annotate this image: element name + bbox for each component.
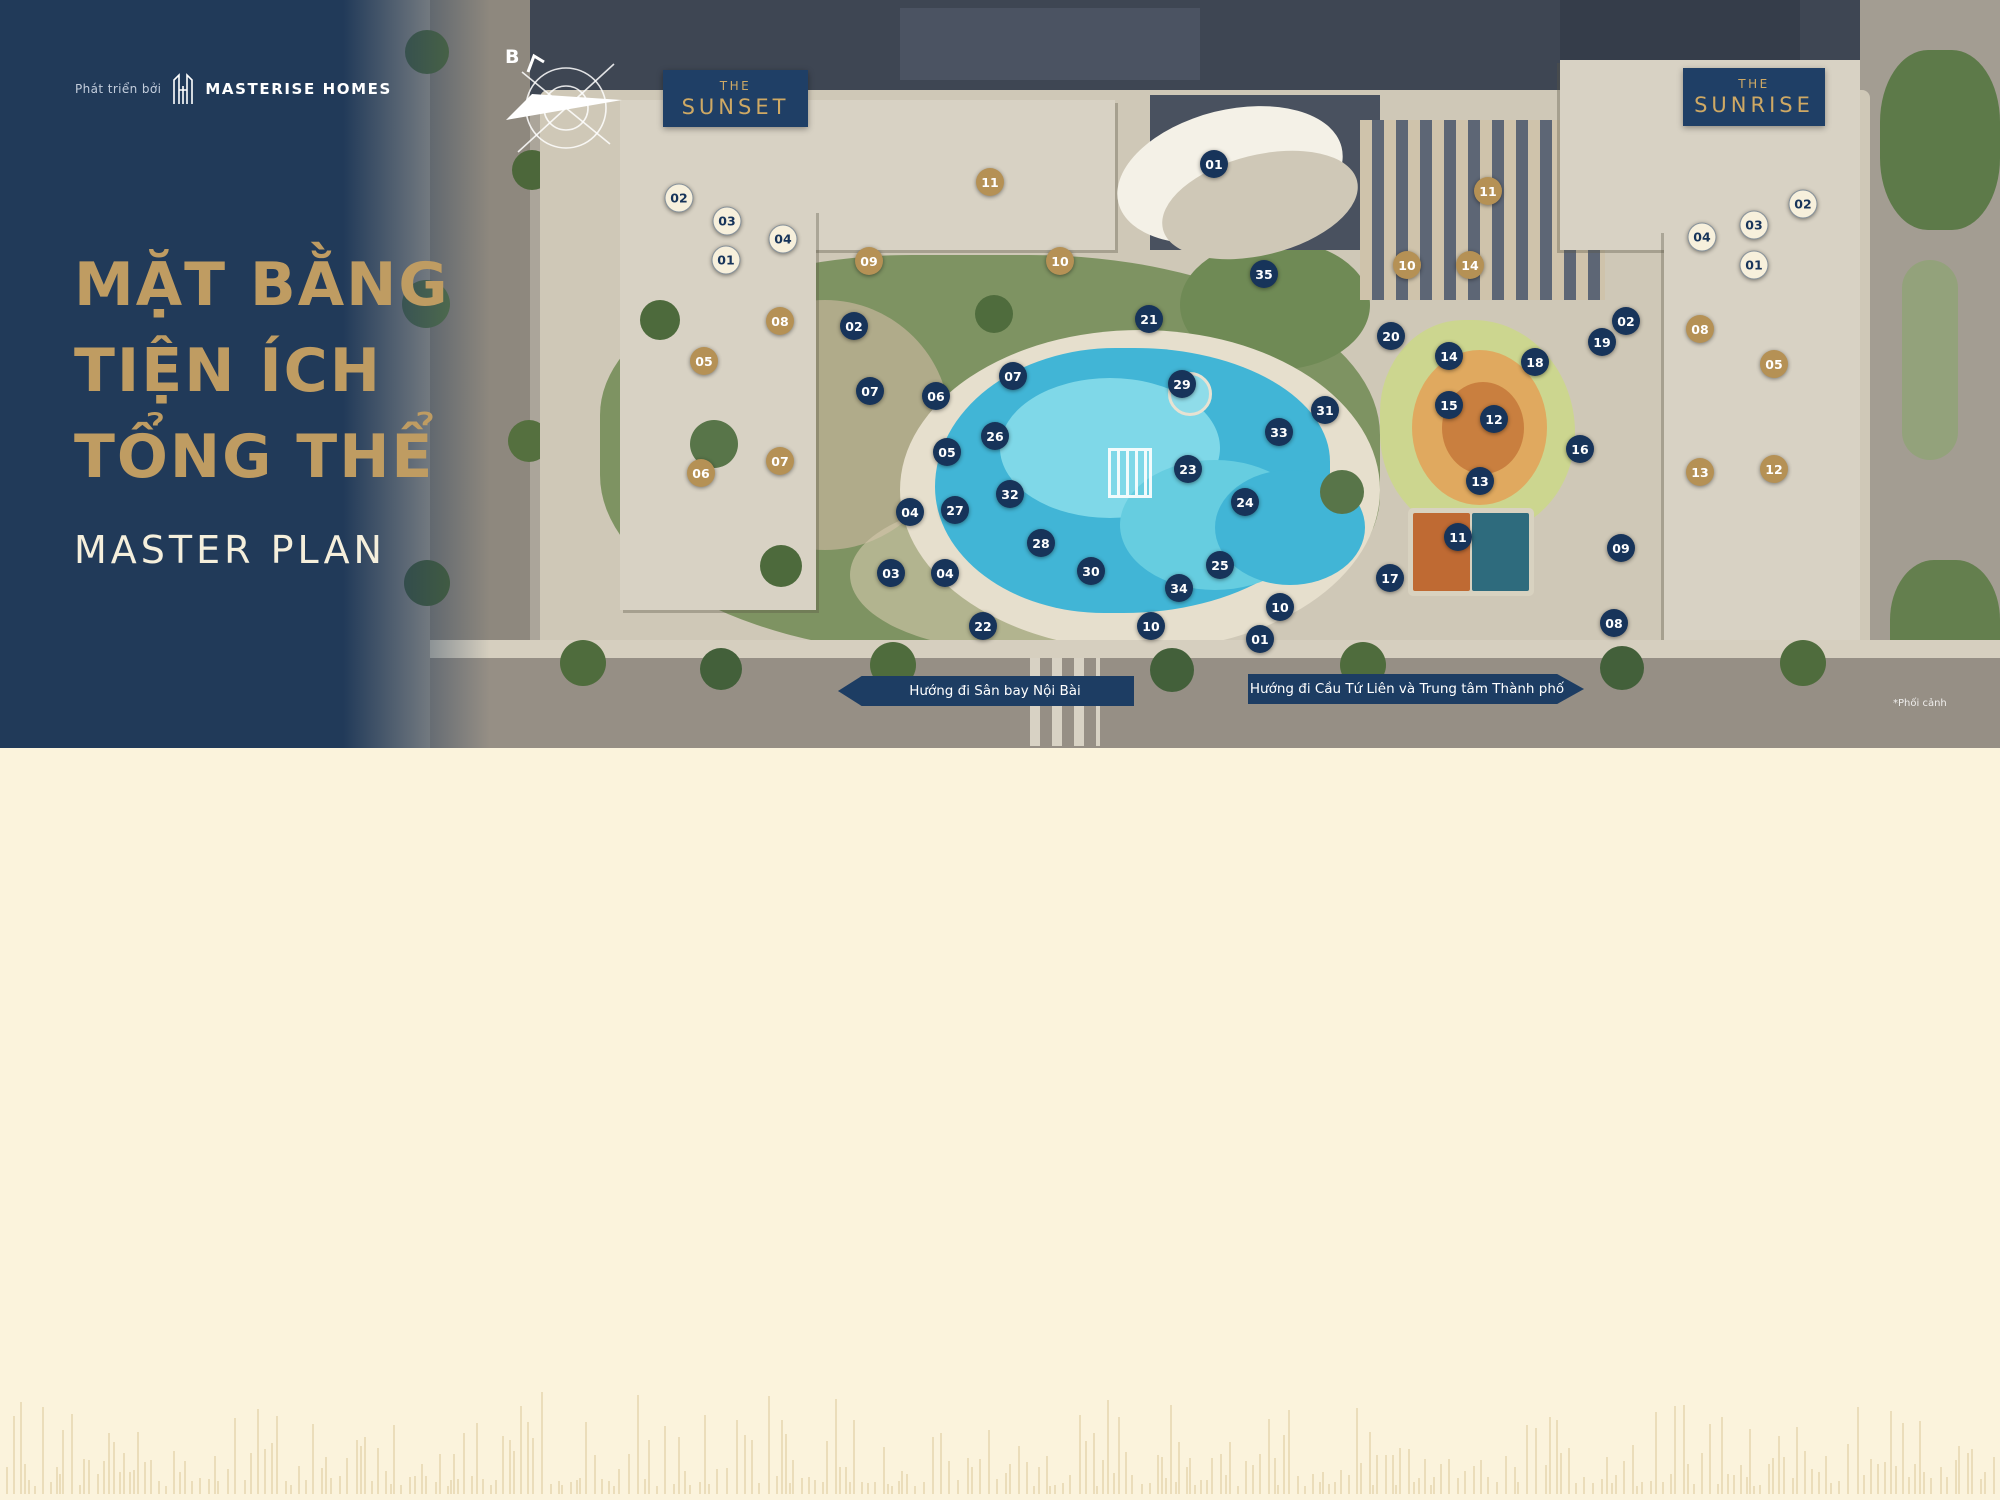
barcode-bar xyxy=(887,1484,889,1494)
map-marker-14[interactable]: 14 xyxy=(1456,251,1484,279)
map-marker-30[interactable]: 30 xyxy=(1077,557,1105,585)
barcode-bar xyxy=(1721,1417,1723,1494)
map-marker-11[interactable]: 11 xyxy=(976,168,1004,196)
barcode-bar xyxy=(520,1406,522,1494)
barcode-bar xyxy=(1592,1483,1594,1494)
legend-section: TIỆN ÍCH NGOÀI TRỜI TIỆN ÍCH TRONG NHÀ T… xyxy=(0,748,2000,1500)
barcode-bar xyxy=(678,1437,680,1494)
map-marker-13[interactable]: 13 xyxy=(1466,467,1494,495)
barcode-bar xyxy=(88,1460,90,1494)
barcode-bar xyxy=(1328,1484,1330,1494)
barcode-bar xyxy=(1870,1459,1872,1494)
barcode-bar xyxy=(271,1443,273,1494)
map-marker-20[interactable]: 20 xyxy=(1377,322,1405,350)
barcode-bar xyxy=(853,1420,855,1494)
barcode-bar xyxy=(34,1486,36,1494)
barcode-bar xyxy=(874,1482,876,1494)
barcode-bar xyxy=(1430,1485,1432,1494)
map-marker-01[interactable]: 01 xyxy=(1200,150,1228,178)
barcode-bar xyxy=(377,1448,379,1494)
barcode-bar xyxy=(1334,1482,1336,1494)
barcode-bar xyxy=(1319,1482,1321,1494)
barcode-bar xyxy=(119,1472,121,1494)
barcode-bar xyxy=(62,1430,64,1494)
barcode-bar xyxy=(1838,1481,1840,1494)
barcode-bar xyxy=(71,1414,73,1494)
barcode-bar xyxy=(1448,1459,1450,1494)
barcode-bar xyxy=(914,1486,916,1494)
barcode-bar xyxy=(1717,1484,1719,1494)
barcode-bar xyxy=(1693,1484,1695,1494)
barcode-bar xyxy=(371,1481,373,1494)
barcode-bar xyxy=(1268,1419,1270,1494)
map-marker-04[interactable]: 04 xyxy=(931,559,959,587)
barcode-bar xyxy=(1768,1464,1770,1494)
barcode-bar xyxy=(56,1467,58,1494)
barcode-bar xyxy=(1033,1486,1035,1494)
map-marker-14[interactable]: 14 xyxy=(1435,342,1463,370)
map-marker-11[interactable]: 11 xyxy=(1474,177,1502,205)
barcode-bar xyxy=(923,1482,925,1494)
barcode-bar xyxy=(1259,1454,1261,1494)
barcode-bar xyxy=(1811,1469,1813,1494)
barcode-bar xyxy=(822,1482,824,1494)
map-marker-02[interactable]: 02 xyxy=(1612,307,1640,335)
barcode-bar xyxy=(744,1435,746,1494)
barcode-bar xyxy=(447,1486,449,1494)
barcode-bar xyxy=(1940,1467,1942,1494)
barcode-bar xyxy=(1560,1453,1562,1494)
barcode-bar xyxy=(708,1484,710,1494)
barcode-bar xyxy=(1237,1486,1239,1494)
barcode-bar xyxy=(576,1480,578,1494)
map-marker-16[interactable]: 16 xyxy=(1566,435,1594,463)
barcode-bar xyxy=(751,1440,753,1494)
barcode-bar xyxy=(861,1482,863,1494)
barcode-bar xyxy=(1395,1485,1397,1494)
barcode-bar xyxy=(1632,1445,1634,1494)
map-marker-03[interactable]: 03 xyxy=(1740,211,1769,240)
barcode-bar xyxy=(208,1479,210,1494)
barcode-bar xyxy=(704,1415,706,1494)
barcode-bar xyxy=(532,1438,534,1494)
barcode-bar xyxy=(1194,1485,1196,1494)
map-marker-05[interactable]: 05 xyxy=(933,438,961,466)
map-marker-28[interactable]: 28 xyxy=(1027,529,1055,557)
barcode-bar xyxy=(1107,1400,1109,1494)
barcode-bar xyxy=(264,1449,266,1494)
barcode-bar xyxy=(1984,1472,1986,1494)
map-marker-29[interactable]: 29 xyxy=(1168,370,1196,398)
map-marker-08[interactable]: 08 xyxy=(1686,315,1714,343)
barcode-bar xyxy=(1038,1467,1040,1494)
barcode-bar xyxy=(1186,1467,1188,1494)
barcode-bar xyxy=(144,1462,146,1494)
barcode-bar xyxy=(42,1407,44,1494)
barcode-bar xyxy=(1583,1477,1585,1494)
barcode-bar xyxy=(360,1446,362,1494)
barcode-bar xyxy=(103,1461,105,1494)
barcode-bar xyxy=(971,1467,973,1494)
barcode-bar xyxy=(1229,1442,1231,1494)
barcode-bar xyxy=(867,1483,869,1494)
barcode-bar xyxy=(1919,1421,1921,1494)
barcode-bar xyxy=(364,1437,366,1494)
barcode-bar xyxy=(1297,1476,1299,1494)
barcode-bar xyxy=(948,1461,950,1494)
map-marker-05[interactable]: 05 xyxy=(690,347,718,375)
barcode-bar xyxy=(1096,1486,1098,1494)
barcode-bar xyxy=(901,1471,903,1494)
map-marker-09[interactable]: 09 xyxy=(855,247,883,275)
barcode-bar xyxy=(476,1423,478,1494)
barcode-bar xyxy=(996,1479,998,1494)
barcode-bar xyxy=(785,1434,787,1494)
barcode-bar xyxy=(150,1460,152,1494)
barcode-bar xyxy=(123,1453,125,1494)
barcode-bar xyxy=(1655,1412,1657,1494)
barcode-bar xyxy=(1955,1460,1957,1494)
barcode-bar xyxy=(1746,1477,1748,1494)
barcode-bar xyxy=(1980,1479,1982,1494)
barcode-bar xyxy=(1189,1458,1191,1494)
barcode-bar xyxy=(585,1422,587,1494)
barcode-bar xyxy=(356,1440,358,1494)
barcode-bar xyxy=(716,1469,718,1494)
barcode-bar xyxy=(1623,1461,1625,1494)
map-marker-24[interactable]: 24 xyxy=(1231,488,1259,516)
barcode-bar xyxy=(1131,1475,1133,1494)
barcode-bar xyxy=(1496,1482,1498,1494)
barcode-bar xyxy=(1908,1477,1910,1494)
map-marker-32[interactable]: 32 xyxy=(996,480,1024,508)
barcode-bar xyxy=(1749,1429,1751,1494)
barcode-bar xyxy=(1636,1486,1638,1494)
barcode-bar xyxy=(1709,1424,1711,1494)
barcode-bar xyxy=(988,1430,990,1494)
barcode-bar xyxy=(330,1478,332,1494)
barcode-bar xyxy=(1683,1405,1685,1494)
barcode-bar xyxy=(1178,1442,1180,1494)
barcode-bar xyxy=(1161,1457,1163,1494)
barcode-bar xyxy=(1473,1466,1475,1494)
map-marker-25[interactable]: 25 xyxy=(1206,551,1234,579)
barcode-bar xyxy=(808,1477,810,1494)
barcode-bar xyxy=(276,1416,278,1494)
barcode-bar xyxy=(502,1436,504,1494)
map-marker-19[interactable]: 19 xyxy=(1588,328,1616,356)
barcode-bar xyxy=(1418,1478,1420,1494)
barcode-bar xyxy=(849,1482,851,1494)
barcode-bar xyxy=(425,1476,427,1494)
barcode-bar xyxy=(1288,1410,1290,1494)
barcode-bar xyxy=(1026,1462,1028,1494)
barcode-bar xyxy=(608,1481,610,1494)
map-marker-23[interactable]: 23 xyxy=(1174,455,1202,483)
barcode-bar xyxy=(325,1457,327,1494)
barcode-bar xyxy=(1923,1472,1925,1494)
barcode-bar xyxy=(1740,1465,1742,1494)
barcode-bar xyxy=(1733,1475,1735,1494)
barcode-bar xyxy=(439,1454,441,1494)
barcode-bar xyxy=(594,1455,596,1494)
barcode-bar xyxy=(814,1480,816,1494)
barcode-bar xyxy=(1792,1478,1794,1494)
barcode-bar xyxy=(1930,1478,1932,1494)
barcode-bar xyxy=(217,1481,219,1494)
barcode-bar xyxy=(776,1476,778,1494)
barcode-bar xyxy=(50,1482,52,1494)
map-marker-06[interactable]: 06 xyxy=(922,382,950,410)
barcode-bar xyxy=(1046,1456,1048,1494)
barcode-bar xyxy=(1118,1417,1120,1494)
barcode-bar xyxy=(158,1481,160,1494)
barcode-bar xyxy=(1054,1485,1056,1494)
map-marker-06[interactable]: 06 xyxy=(687,459,715,487)
barcode-bar xyxy=(1601,1479,1603,1494)
barcode-bar xyxy=(1804,1451,1806,1494)
barcode-bar xyxy=(184,1461,186,1494)
barcode-bar xyxy=(1759,1485,1761,1494)
barcode-bar xyxy=(1993,1457,1995,1494)
barcode-bar xyxy=(1772,1458,1774,1494)
barcode-bar xyxy=(390,1484,392,1494)
map-marker-08[interactable]: 08 xyxy=(1600,609,1628,637)
barcode-bar xyxy=(1480,1460,1482,1494)
map-marker-02[interactable]: 02 xyxy=(1789,190,1818,219)
barcode-bar xyxy=(321,1468,323,1494)
map-marker-03[interactable]: 03 xyxy=(713,207,742,236)
map-marker-01[interactable]: 01 xyxy=(712,246,741,275)
barcode-bar xyxy=(1890,1411,1892,1494)
barcode-bar xyxy=(648,1440,650,1494)
barcode-bar xyxy=(1018,1446,1020,1494)
map-marker-04[interactable]: 04 xyxy=(896,498,924,526)
map-marker-11[interactable]: 11 xyxy=(1444,523,1472,551)
barcode-bar xyxy=(1606,1457,1608,1494)
barcode-bar xyxy=(1062,1483,1064,1494)
map-marker-04[interactable]: 04 xyxy=(769,225,798,254)
map-marker-03[interactable]: 03 xyxy=(877,559,905,587)
map-marker-26[interactable]: 26 xyxy=(981,422,1009,450)
barcode-bar xyxy=(129,1472,131,1494)
barcode-bar xyxy=(1971,1449,1973,1494)
map-marker-01[interactable]: 01 xyxy=(1246,625,1274,653)
barcode-bar xyxy=(173,1451,175,1494)
barcode-bar xyxy=(1753,1486,1755,1494)
barcode-bar xyxy=(290,1485,292,1494)
barcode-bar xyxy=(250,1453,252,1494)
barcode-bar xyxy=(1413,1482,1415,1494)
barcode-bar xyxy=(1399,1448,1401,1494)
barcode-bar xyxy=(495,1480,497,1494)
barcode-bar xyxy=(726,1468,728,1494)
barcode-bar xyxy=(1440,1464,1442,1494)
barcode-bar xyxy=(684,1471,686,1494)
barcode-bar xyxy=(1641,1482,1643,1494)
barcode-bar xyxy=(234,1418,236,1494)
barcode-bar xyxy=(1568,1448,1570,1494)
barcode-bar xyxy=(1877,1464,1879,1494)
barcode-bar xyxy=(1535,1428,1537,1494)
map-marker-05[interactable]: 05 xyxy=(1760,350,1788,378)
barcode-bar xyxy=(1487,1477,1489,1494)
map-marker-18[interactable]: 18 xyxy=(1521,348,1549,376)
barcode-bar xyxy=(1165,1478,1167,1494)
barcode-bar xyxy=(1141,1484,1143,1494)
map-marker-01[interactable]: 01 xyxy=(1740,251,1769,280)
barcode-bar xyxy=(1902,1423,1904,1494)
map-marker-10[interactable]: 10 xyxy=(1266,593,1294,621)
barcode-bar xyxy=(1304,1486,1306,1494)
barcode-bar xyxy=(883,1447,885,1494)
map-marker-10[interactable]: 10 xyxy=(1046,247,1074,275)
barcode-bar xyxy=(1283,1435,1285,1494)
barcode-bar xyxy=(435,1482,437,1494)
barcode-bar xyxy=(97,1474,99,1494)
barcode-bar xyxy=(79,1485,81,1494)
barcode-bar xyxy=(1424,1459,1426,1494)
map-marker-31[interactable]: 31 xyxy=(1311,396,1339,424)
barcode-bar xyxy=(6,1467,8,1494)
map-marker-21[interactable]: 21 xyxy=(1135,305,1163,333)
barcode-bar xyxy=(1783,1457,1785,1494)
map-marker-10[interactable]: 10 xyxy=(1137,612,1165,640)
map-marker-15[interactable]: 15 xyxy=(1435,391,1463,419)
barcode-bar xyxy=(1356,1408,1358,1494)
barcode-bar xyxy=(1340,1470,1342,1494)
barcode-bar xyxy=(1958,1446,1960,1494)
barcode-bar xyxy=(768,1396,770,1494)
barcode-bar xyxy=(1085,1441,1087,1494)
barcode-bar xyxy=(1884,1462,1886,1494)
barcode-bar xyxy=(1650,1481,1652,1494)
barcode-bar xyxy=(1408,1449,1410,1494)
barcode-bar xyxy=(656,1486,658,1494)
map-marker-04[interactable]: 04 xyxy=(1688,223,1717,252)
map-marker-07[interactable]: 07 xyxy=(999,362,1027,390)
barcode-bar xyxy=(618,1469,620,1494)
barcode-bar xyxy=(940,1433,942,1494)
map-marker-22[interactable]: 22 xyxy=(969,612,997,640)
map-marker-02[interactable]: 02 xyxy=(665,184,694,213)
barcode-bar xyxy=(1674,1406,1676,1494)
barcode-bar xyxy=(1847,1444,1849,1494)
map-marker-35[interactable]: 35 xyxy=(1250,260,1278,288)
barcode-bar xyxy=(108,1433,110,1494)
aerial-map: B THE SUNSET THE SUNRISE Hướng đi Sân ba… xyxy=(0,0,2000,748)
map-marker-34[interactable]: 34 xyxy=(1165,574,1193,602)
barcode-bar xyxy=(613,1486,615,1494)
barcode-bar xyxy=(1079,1415,1081,1494)
barcode-bar xyxy=(1348,1475,1350,1494)
barcode-bar xyxy=(1376,1455,1378,1494)
map-marker-07[interactable]: 07 xyxy=(766,447,794,475)
barcode-bar xyxy=(1277,1485,1279,1494)
map-marker-10[interactable]: 10 xyxy=(1393,251,1421,279)
barcode-bar xyxy=(165,1486,167,1494)
barcode-bar xyxy=(1369,1432,1371,1494)
barcode-bar xyxy=(409,1477,411,1494)
barcode-bar xyxy=(845,1467,847,1494)
barcode-bar xyxy=(1549,1417,1551,1494)
barcode-bar xyxy=(1662,1482,1664,1494)
map-marker-08[interactable]: 08 xyxy=(766,307,794,335)
barcode-bar xyxy=(13,1416,15,1494)
barcode-bar xyxy=(1670,1474,1672,1494)
barcode-bar xyxy=(1049,1486,1051,1494)
marker-layer: 0101020203040405060707080910101112131415… xyxy=(0,0,2000,748)
map-marker-12[interactable]: 12 xyxy=(1760,455,1788,483)
barcode-bar xyxy=(1914,1464,1916,1494)
barcode-bar xyxy=(1312,1474,1314,1494)
barcode-bar xyxy=(967,1458,969,1494)
map-marker-07[interactable]: 07 xyxy=(856,377,884,405)
barcode-bar xyxy=(312,1424,314,1494)
barcode-bar xyxy=(628,1454,630,1494)
barcode-bar xyxy=(561,1485,563,1494)
barcode-bar xyxy=(1727,1474,1729,1494)
barcode-bar xyxy=(1517,1482,1519,1494)
map-marker-17[interactable]: 17 xyxy=(1376,564,1404,592)
barcode-bar xyxy=(1220,1454,1222,1494)
barcode-bar xyxy=(1830,1483,1832,1494)
barcode-bar xyxy=(839,1467,841,1494)
barcode-bar xyxy=(83,1459,85,1494)
barcode-bar xyxy=(199,1478,201,1494)
barcode-bar xyxy=(1093,1433,1095,1494)
barcode-bar xyxy=(490,1485,492,1494)
barcode-bar xyxy=(1857,1407,1859,1494)
barcode-bar xyxy=(191,1481,193,1494)
barcode-bar xyxy=(792,1460,794,1494)
barcode-bar xyxy=(137,1432,139,1494)
barcode-bar xyxy=(113,1442,115,1494)
barcode-bar xyxy=(244,1480,246,1494)
map-marker-09[interactable]: 09 xyxy=(1607,534,1635,562)
barcode-bar xyxy=(1392,1455,1394,1494)
map-marker-13[interactable]: 13 xyxy=(1686,458,1714,486)
barcode-bar xyxy=(664,1426,666,1494)
barcode-bar xyxy=(1009,1464,1011,1494)
barcode-bar xyxy=(298,1466,300,1494)
barcode-bar xyxy=(339,1476,341,1494)
barcode-bar xyxy=(1687,1464,1689,1494)
barcode-bar xyxy=(1322,1472,1324,1494)
barcode-bar xyxy=(450,1480,452,1494)
barcode-bar xyxy=(1967,1453,1969,1494)
map-marker-02[interactable]: 02 xyxy=(840,312,868,340)
barcode-bar xyxy=(28,1480,30,1494)
barcode-bar xyxy=(393,1425,395,1494)
map-marker-12[interactable]: 12 xyxy=(1480,405,1508,433)
barcode-bar xyxy=(758,1483,760,1494)
barcode-bar xyxy=(1796,1427,1798,1494)
barcode-bar xyxy=(1863,1475,1865,1494)
barcode-bar xyxy=(1149,1483,1151,1494)
barcode-bar xyxy=(179,1472,181,1494)
barcode-bar xyxy=(1545,1465,1547,1494)
master-plan-poster: B THE SUNSET THE SUNRISE Hướng đi Sân ba… xyxy=(0,0,2000,1500)
barcode-bar xyxy=(305,1480,307,1494)
map-marker-33[interactable]: 33 xyxy=(1265,418,1293,446)
barcode-bar xyxy=(932,1437,934,1494)
barcode-bar xyxy=(579,1478,581,1494)
barcode-bar xyxy=(513,1451,515,1494)
barcode-bar xyxy=(400,1485,402,1494)
map-marker-27[interactable]: 27 xyxy=(941,496,969,524)
barcode-bar xyxy=(789,1483,791,1494)
